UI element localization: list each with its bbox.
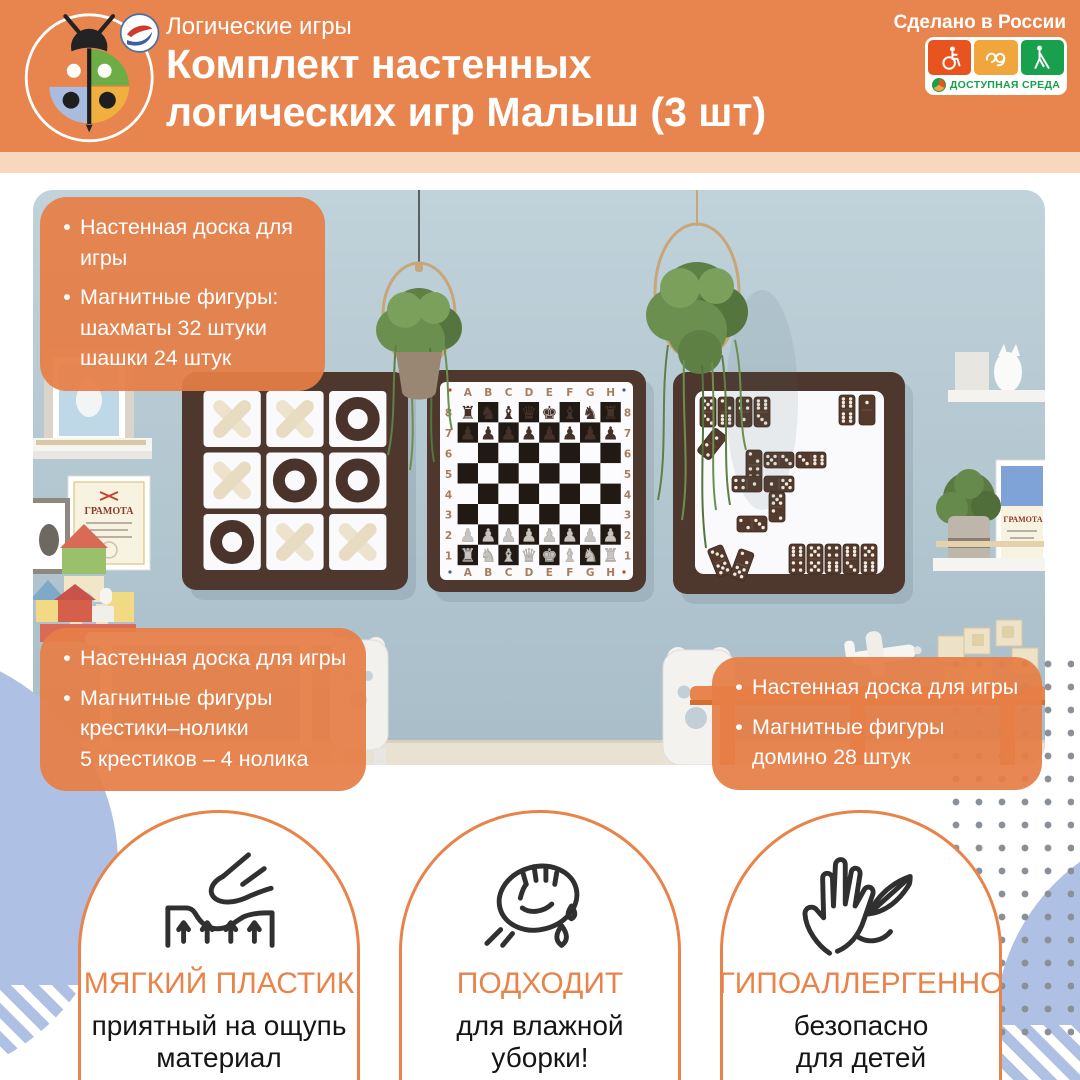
callout-line: Настенная доска для игры bbox=[80, 212, 307, 273]
svg-text:A: A bbox=[464, 387, 473, 399]
svg-text:♟: ♟ bbox=[460, 525, 476, 546]
svg-text:♟: ♟ bbox=[603, 525, 619, 546]
svg-text:A: A bbox=[464, 567, 473, 579]
callout-chess-checkers: Настенная доска для игры Магнитные фигур… bbox=[40, 197, 325, 391]
svg-text:♚: ♚ bbox=[541, 403, 557, 424]
callout-lines: Магнитные фигуры домино 28 штук bbox=[752, 712, 944, 773]
svg-text:3: 3 bbox=[624, 510, 631, 522]
svg-text:♟: ♟ bbox=[480, 525, 496, 546]
svg-text:♝: ♝ bbox=[501, 403, 517, 424]
svg-text:H: H bbox=[606, 387, 615, 399]
svg-text:♜: ♜ bbox=[603, 546, 619, 567]
feature-title: ПОДХОДИТ bbox=[457, 967, 623, 1001]
feature-description: безопасно для детей bbox=[794, 1010, 929, 1074]
callout-tic-tac-toe: Настенная доска для игры Магнитные фигур… bbox=[40, 628, 366, 791]
svg-text:♞: ♞ bbox=[480, 403, 496, 424]
feature-description: приятный на ощупь материал bbox=[92, 1010, 347, 1074]
svg-text:6: 6 bbox=[445, 449, 452, 461]
wheelchair-icon bbox=[928, 40, 971, 75]
feature-description: для влажной уборки! bbox=[456, 1010, 623, 1074]
svg-text:5: 5 bbox=[624, 469, 631, 481]
made-in-label: Сделано в России bbox=[894, 12, 1066, 34]
sign-language-icon bbox=[974, 40, 1017, 75]
category-label: Логические игры bbox=[166, 13, 352, 41]
svg-text:♛: ♛ bbox=[521, 403, 537, 424]
blind-person-icon bbox=[1021, 40, 1064, 75]
svg-text:2: 2 bbox=[624, 530, 631, 542]
wet-cleaning-icon bbox=[459, 847, 621, 965]
accessibility-badge: ДОСТУПНАЯ СРЕДА bbox=[925, 37, 1067, 95]
svg-text:F: F bbox=[566, 387, 573, 399]
svg-text:E: E bbox=[546, 387, 553, 399]
svg-text:2: 2 bbox=[445, 530, 452, 542]
svg-text:♝: ♝ bbox=[562, 403, 578, 424]
svg-text:♜: ♜ bbox=[460, 403, 476, 424]
callout-lines: Магнитные фигуры: шахматы 32 штуки шашки… bbox=[80, 282, 278, 374]
svg-text:♜: ♜ bbox=[460, 546, 476, 567]
svg-text:♟: ♟ bbox=[501, 423, 517, 444]
svg-text:8: 8 bbox=[624, 408, 631, 420]
svg-text:C: C bbox=[505, 387, 513, 399]
ladybug-logo-icon bbox=[22, 5, 162, 145]
svg-text:G: G bbox=[586, 387, 595, 399]
svg-text:♟: ♟ bbox=[521, 525, 537, 546]
accent-stripe bbox=[0, 152, 1080, 173]
svg-text:B: B bbox=[484, 387, 492, 399]
feature-card-hypoallergenic: ГИПОАЛЛЕРГЕННО безопасно для детей bbox=[720, 810, 1002, 1080]
svg-text:♟: ♟ bbox=[541, 525, 557, 546]
svg-text:♟: ♟ bbox=[460, 423, 476, 444]
svg-text:5: 5 bbox=[445, 469, 452, 481]
svg-text:1: 1 bbox=[624, 551, 631, 563]
accessible-environment-icon bbox=[932, 78, 946, 92]
feature-title: ГИПОАЛЛЕРГЕННО bbox=[718, 967, 1003, 1001]
callout-dominoes: Настенная доска для игры Магнитные фигур… bbox=[712, 657, 1042, 790]
svg-text:♟: ♟ bbox=[541, 423, 557, 444]
svg-text:4: 4 bbox=[445, 489, 452, 501]
page-title: Комплект настенных логических игр Малыш … bbox=[166, 41, 766, 136]
svg-text:♟: ♟ bbox=[603, 423, 619, 444]
chess-board: AABBCCDDEEFFGGHH8877665544332211♜♞♝♛♚♝♞♜… bbox=[427, 370, 646, 592]
svg-text:♚: ♚ bbox=[541, 546, 557, 567]
svg-text:♝: ♝ bbox=[501, 546, 517, 567]
callout-lines: Магнитные фигуры крестики–нолики 5 крест… bbox=[80, 683, 308, 775]
callout-line: Настенная доска для игры bbox=[752, 672, 1018, 703]
page-title-line1: Комплект настенных bbox=[166, 41, 766, 89]
callout-line: Настенная доска для игры bbox=[80, 643, 346, 674]
accessibility-label: ДОСТУПНАЯ СРЕДА bbox=[950, 79, 1060, 91]
accessibility-pictograms bbox=[928, 40, 1064, 75]
certificate-frame-right: ГРАМОТА bbox=[996, 460, 1045, 566]
svg-text:4: 4 bbox=[624, 489, 631, 501]
svg-text:7: 7 bbox=[624, 428, 631, 440]
svg-text:♟: ♟ bbox=[562, 525, 578, 546]
svg-text:D: D bbox=[525, 387, 534, 399]
feature-card-soft-plastic: МЯГКИЙ ПЛАСТИК приятный на ощупь материа… bbox=[78, 810, 360, 1080]
svg-text:E: E bbox=[546, 567, 553, 579]
hand-feather-icon bbox=[780, 847, 942, 965]
svg-text:♛: ♛ bbox=[521, 546, 537, 567]
feature-card-washable: ПОДХОДИТ для влажной уборки! bbox=[399, 810, 681, 1080]
svg-text:♜: ♜ bbox=[603, 403, 619, 424]
svg-text:6: 6 bbox=[624, 449, 631, 461]
product-card: Логические игры Комплект настенных логич… bbox=[0, 0, 1080, 1080]
svg-text:♟: ♟ bbox=[521, 423, 537, 444]
svg-text:♟: ♟ bbox=[582, 423, 598, 444]
svg-text:ГРАМОТА: ГРАМОТА bbox=[1003, 515, 1042, 524]
svg-text:G: G bbox=[586, 567, 595, 579]
svg-text:♟: ♟ bbox=[562, 423, 578, 444]
svg-text:B: B bbox=[484, 567, 492, 579]
svg-text:♞: ♞ bbox=[582, 403, 598, 424]
svg-text:ГРАМОТА: ГРАМОТА bbox=[84, 506, 134, 517]
svg-text:♟: ♟ bbox=[501, 525, 517, 546]
svg-text:♞: ♞ bbox=[582, 546, 598, 567]
soft-press-icon bbox=[138, 847, 300, 965]
flag-swoosh-icon bbox=[121, 14, 159, 52]
svg-text:H: H bbox=[606, 567, 615, 579]
svg-text:♞: ♞ bbox=[480, 546, 496, 567]
svg-text:♝: ♝ bbox=[562, 546, 578, 567]
svg-text:F: F bbox=[566, 567, 573, 579]
svg-text:1: 1 bbox=[445, 551, 452, 563]
svg-text:D: D bbox=[525, 567, 534, 579]
svg-text:C: C bbox=[505, 567, 513, 579]
tic-tac-toe-board bbox=[182, 372, 408, 590]
page-title-line2: логических игр Малыш (3 шт) bbox=[166, 89, 766, 137]
svg-text:♟: ♟ bbox=[582, 525, 598, 546]
feature-title: МЯГКИЙ ПЛАСТИК bbox=[84, 967, 354, 1001]
svg-text:3: 3 bbox=[445, 510, 452, 522]
svg-text:♟: ♟ bbox=[480, 423, 496, 444]
